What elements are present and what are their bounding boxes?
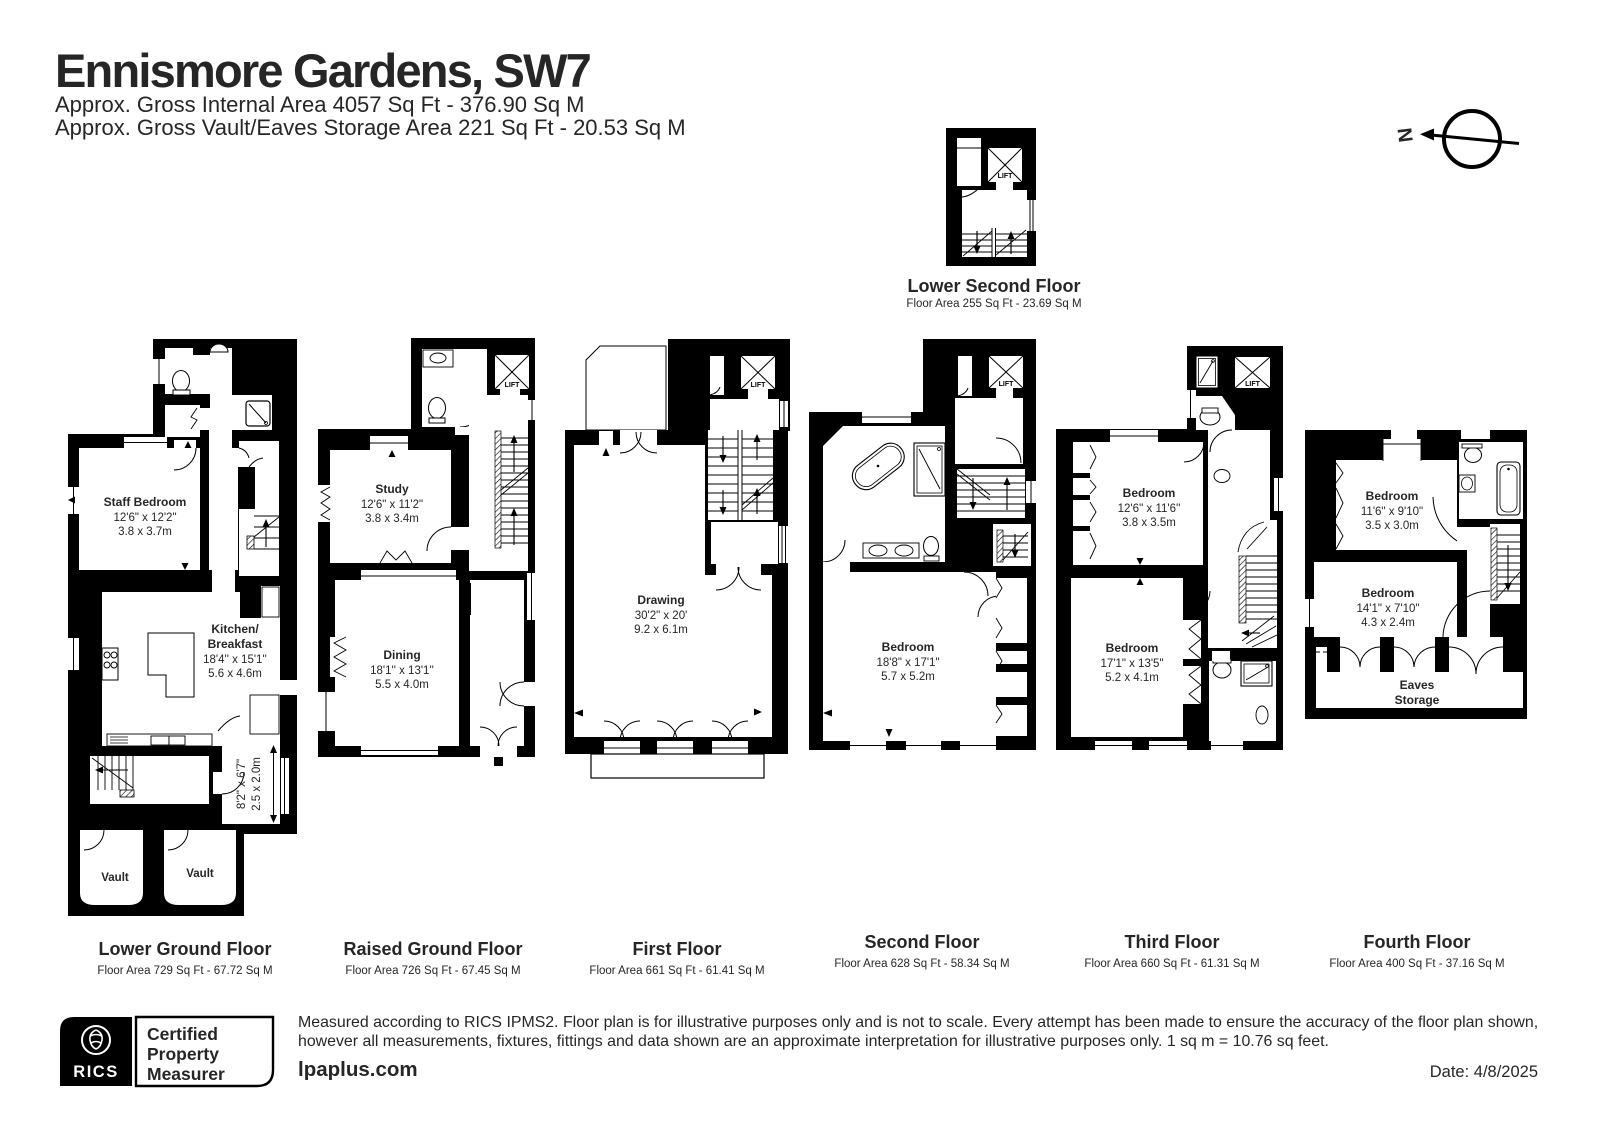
svg-text:Bedroom: Bedroom [1106,641,1159,655]
svg-text:LIFT: LIFT [751,382,766,389]
svg-text:Date: 4/8/2025: Date: 4/8/2025 [1430,1063,1538,1081]
svg-text:18'1'' x 13'1'': 18'1'' x 13'1'' [370,665,434,677]
svg-text:12'6" x 12'2": 12'6" x 12'2" [113,512,176,524]
svg-text:Vault: Vault [186,868,214,880]
svg-text:3.8 x 3.5m: 3.8 x 3.5m [1122,517,1176,529]
svg-text:Bedroom: Bedroom [882,640,935,654]
svg-text:Third Floor: Third Floor [1125,932,1220,952]
svg-text:Second Floor: Second Floor [864,932,979,952]
svg-text:Approx. Gross Internal Area 40: Approx. Gross Internal Area 4057 Sq Ft -… [55,92,585,117]
svg-text:Ennismore Gardens, SW7: Ennismore Gardens, SW7 [55,44,591,97]
svg-text:18'8" x 17'1": 18'8" x 17'1" [876,657,939,669]
svg-text:LIFT: LIFT [999,381,1014,388]
svg-text:lpaplus.com: lpaplus.com [298,1058,418,1081]
svg-text:Storage: Storage [1395,693,1440,707]
svg-text:9.2 x 6.1m: 9.2 x 6.1m [634,624,688,636]
svg-text:12'6'' x 11'6'': 12'6'' x 11'6'' [1118,503,1181,515]
svg-text:Floor Area 255 Sq Ft - 23.69 S: Floor Area 255 Sq Ft - 23.69 Sq M [906,298,1081,310]
svg-text:30'2" x 20': 30'2" x 20' [635,610,688,622]
svg-text:11'6" x 9'10": 11'6" x 9'10" [1361,506,1423,518]
svg-text:4.3 x 2.4m: 4.3 x 2.4m [1361,617,1415,629]
svg-text:Fourth Floor: Fourth Floor [1364,932,1471,952]
svg-text:2.5 x 2.0m: 2.5 x 2.0m [251,757,263,811]
svg-text:Bedroom: Bedroom [1123,486,1176,500]
svg-text:LIFT: LIFT [1245,381,1260,388]
svg-text:Measured according to RICS IPM: Measured according to RICS IPMS2. Floor … [298,1014,1538,1031]
svg-text:18'4'' x 15'1'': 18'4'' x 15'1'' [203,654,267,666]
svg-text:RICS: RICS [73,1063,118,1081]
svg-text:Breakfast: Breakfast [208,637,263,651]
svg-text:3.8 x 3.4m: 3.8 x 3.4m [365,513,419,525]
svg-text:14'1" x 7'10": 14'1" x 7'10" [1356,603,1419,615]
svg-text:Floor Area 729 Sq Ft - 67.72 S: Floor Area 729 Sq Ft - 67.72 Sq M [97,965,272,977]
svg-text:Vault: Vault [101,872,129,884]
svg-text:Measurer: Measurer [147,1064,225,1084]
svg-text:3.8 x 3.7m: 3.8 x 3.7m [118,526,172,538]
svg-text:LIFT: LIFT [505,382,520,389]
svg-text:Property: Property [147,1044,219,1064]
svg-text:Study: Study [375,482,409,496]
svg-text:Eaves: Eaves [1400,678,1435,692]
svg-text:LIFT: LIFT [998,173,1013,180]
svg-text:Floor Area 660 Sq Ft - 61.31 S: Floor Area 660 Sq Ft - 61.31 Sq M [1084,958,1259,970]
svg-text:8'2" x 6'7": 8'2" x 6'7" [236,759,248,809]
svg-text:Lower Ground Floor: Lower Ground Floor [99,939,272,959]
svg-text:Floor Area 400 Sq Ft - 37.16 S: Floor Area 400 Sq Ft - 37.16 Sq M [1329,958,1504,970]
svg-text:First Floor: First Floor [633,939,722,959]
svg-text:3.5 x 3.0m: 3.5 x 3.0m [1365,520,1419,532]
svg-text:Floor Area 661 Sq Ft - 61.41 S: Floor Area 661 Sq Ft - 61.41 Sq M [589,965,764,977]
svg-text:12'6" x 11'2": 12'6" x 11'2" [361,499,423,511]
svg-text:Certified: Certified [147,1024,218,1044]
svg-text:Staff Bedroom: Staff Bedroom [104,495,187,509]
svg-text:Dining: Dining [383,648,420,662]
svg-text:5.5 x 4.0m: 5.5 x 4.0m [375,679,429,691]
svg-text:5.7 x 5.2m: 5.7 x 5.2m [881,671,935,683]
svg-text:Floor Area 628 Sq Ft - 58.34 S: Floor Area 628 Sq Ft - 58.34 Sq M [834,958,1009,970]
svg-text:Bedroom: Bedroom [1362,586,1415,600]
svg-text:however all measurements, fixt: however all measurements, fixtures, fitt… [298,1033,1329,1050]
svg-text:N: N [1394,126,1418,143]
svg-text:Raised Ground Floor: Raised Ground Floor [343,939,522,959]
svg-text:Lower Second Floor: Lower Second Floor [907,276,1080,296]
svg-text:5.2 x 4.1m: 5.2 x 4.1m [1105,672,1159,684]
svg-text:Floor Area 726 Sq Ft - 67.45 S: Floor Area 726 Sq Ft - 67.45 Sq M [345,965,520,977]
svg-text:Kitchen/: Kitchen/ [211,622,259,636]
svg-text:Approx. Gross Vault/Eaves Stor: Approx. Gross Vault/Eaves Storage Area 2… [55,115,686,140]
svg-text:17'1" x 13'5": 17'1" x 13'5" [1100,658,1163,670]
svg-text:Bedroom: Bedroom [1366,489,1419,503]
svg-text:Drawing: Drawing [637,593,684,607]
svg-text:5.6 x 4.6m: 5.6 x 4.6m [208,668,262,680]
